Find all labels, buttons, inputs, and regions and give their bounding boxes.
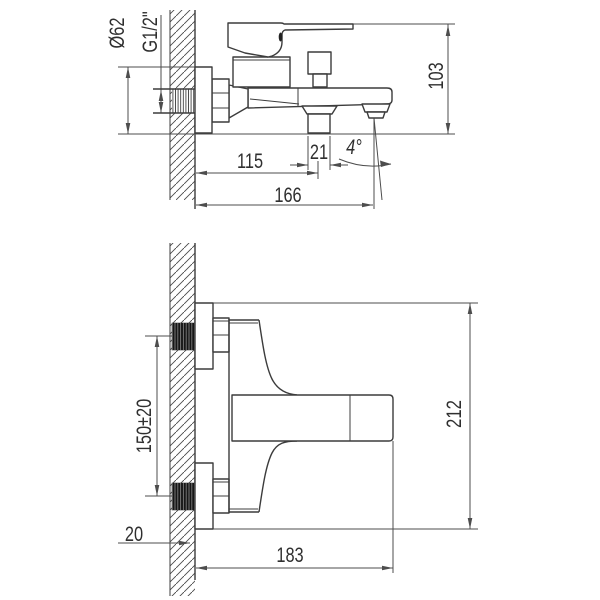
dim-thread-size: G1/2" [138,11,161,52]
inlet-pipe-lower [172,483,196,510]
technical-drawing-canvas: Ø62 G1/2" 103 115 21 4° 166 [0,0,600,600]
dim-inlet-spacing: 150±20 [132,399,155,454]
dim-outlet-width: 21 [310,140,328,163]
dim-spout-reach: 166 [274,183,301,206]
body-cone [229,85,248,118]
dim-spout-angle: 4° [346,135,362,158]
escutcheon [195,67,212,133]
handle-pivot-notch [279,33,283,42]
dim-escutcheon-diameter: Ø62 [105,18,128,49]
dim-shower-outlet-offset: 115 [237,149,263,172]
plan-view: 150±20 212 20 183 [118,243,478,596]
diverter-knob [308,52,331,74]
escutcheon-upper [195,303,213,369]
lever-handle [228,23,353,57]
shower-outlet [302,106,337,133]
dim-overall-span: 212 [443,400,466,428]
inlet-pipe-upper [172,323,196,350]
side-view: Ø62 G1/2" 103 115 21 4° 166 [105,10,455,209]
plan-faucet [172,303,393,529]
side-dimensions [118,15,455,209]
dim-body-height: 103 [424,62,447,89]
cartridge-housing [233,57,290,87]
dim-wall-thickness: 20 [125,522,143,545]
faucet-installation-drawing: Ø62 G1/2" 103 115 21 4° 166 [0,0,600,600]
mounting-nut [212,79,229,122]
spout-handle-bar [232,395,393,441]
spout-aerator [362,104,390,118]
escutcheon-lower [195,463,213,529]
dim-projection: 183 [276,543,303,566]
diverter-stem [313,74,327,87]
